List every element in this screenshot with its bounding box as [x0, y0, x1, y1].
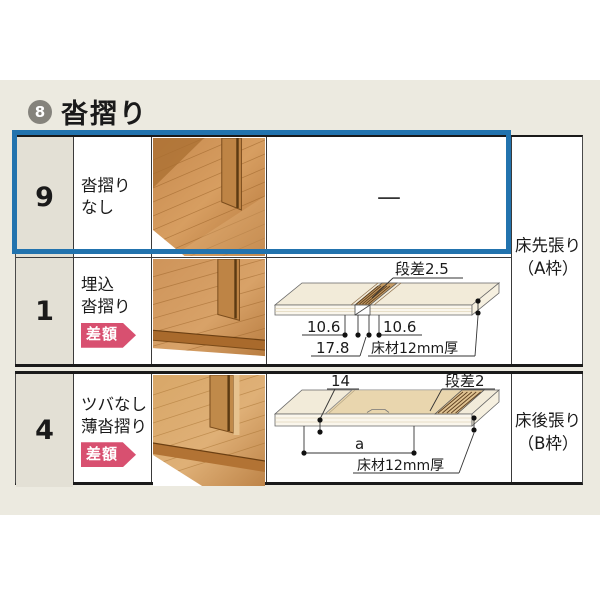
step-dimension-label: 段差2.5 — [395, 260, 449, 278]
cross-section-diagram-a: 段差2.5 10.6 10.6 17.8 床材12mm厚 — [267, 258, 511, 364]
option-number-4: 4 — [16, 374, 73, 487]
right-dimension-label: 10.6 — [383, 318, 416, 336]
option-name-line: 薄沓摺り — [81, 416, 151, 438]
frame-type-label-b: 床後張り （B枠） — [512, 405, 584, 461]
floor-photo-row9 — [152, 137, 266, 257]
section-header: 8 沓摺り — [28, 92, 148, 131]
option-number-9: 9 — [16, 137, 73, 257]
option-number-1: 1 — [16, 258, 73, 364]
left-dimension-label: 10.6 — [307, 318, 340, 336]
threshold-options-table: 9 沓摺り なし — [15, 135, 583, 485]
floor-photo-image — [153, 259, 265, 363]
floor-photo-row1 — [152, 258, 266, 364]
step-dimension-label: 段差2 — [445, 374, 485, 390]
option-name-9: 沓摺り なし — [74, 137, 151, 257]
frame-type-label-a: 床先張り （A枠） — [512, 230, 584, 286]
material-label: 床材12mm厚 — [371, 341, 458, 357]
diagram-a-drawing: 段差2.5 10.6 10.6 17.8 床材12mm厚 — [267, 258, 511, 364]
diagram-b-drawing: 14 段差2 a 床材12mm厚 — [267, 374, 511, 487]
option-name-line: 沓摺り — [81, 175, 151, 197]
option-name-4: ツバなし 薄沓摺り 差額 — [74, 374, 151, 487]
total-dimension-label: 17.8 — [316, 339, 349, 357]
floor-photo-row4 — [152, 374, 266, 487]
diagram-placeholder-dash: — — [267, 137, 511, 257]
span-label: a — [355, 435, 364, 453]
option-name-line: なし — [81, 197, 151, 219]
section-number-badge: 8 — [28, 100, 52, 124]
option-name-line: 沓摺り — [81, 296, 151, 318]
option-name-line: 埋込 — [81, 274, 151, 296]
price-difference-badge: 差額 — [81, 442, 136, 467]
floor-photo-image — [153, 138, 265, 256]
section-number: 8 — [35, 103, 45, 121]
option-name-1: 埋込 沓摺り 差額 — [74, 258, 151, 364]
floor-photo-image — [153, 375, 265, 486]
door-frame — [210, 375, 234, 433]
section-title: 沓摺り — [61, 92, 148, 131]
option-name-line: ツバなし — [81, 394, 151, 416]
cross-section-diagram-b: 14 段差2 a 床材12mm厚 — [267, 374, 511, 487]
material-label: 床材12mm厚 — [357, 458, 444, 474]
frame-type-line: （A枠） — [518, 258, 579, 281]
frame-type-line: 床先張り — [515, 235, 581, 258]
frame-type-line: （B枠） — [518, 433, 579, 456]
catalog-page: 8 沓摺り 9 沓摺り なし — [0, 0, 600, 600]
section-divider-double-line — [15, 364, 583, 374]
edge-height-label: 14 — [331, 374, 350, 390]
frame-type-line: 床後張り — [515, 410, 581, 433]
price-difference-badge: 差額 — [81, 323, 136, 348]
